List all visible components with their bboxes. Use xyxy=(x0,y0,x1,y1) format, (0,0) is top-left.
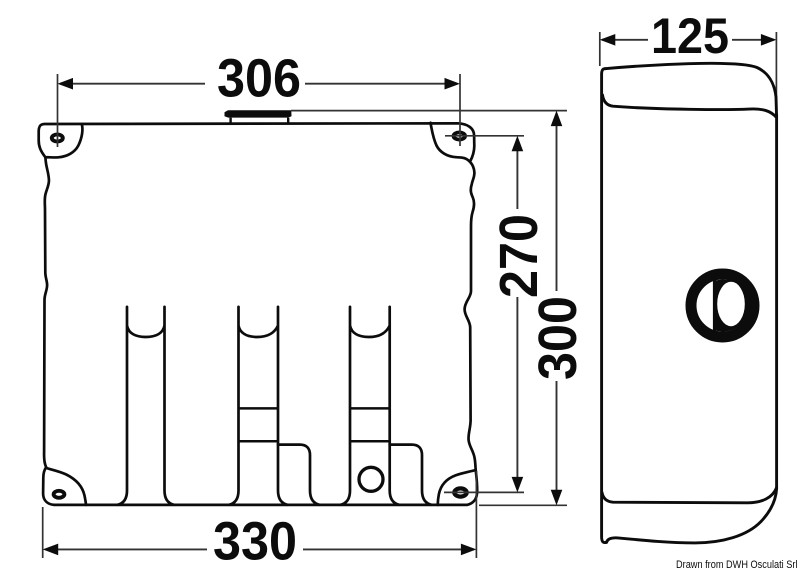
svg-text:Drawn from DWH Osculati Srl: Drawn from DWH Osculati Srl xyxy=(676,559,798,570)
svg-text:125: 125 xyxy=(651,8,729,64)
svg-text:306: 306 xyxy=(217,49,301,109)
svg-text:300: 300 xyxy=(528,296,588,380)
svg-text:270: 270 xyxy=(489,214,549,298)
svg-text:330: 330 xyxy=(213,512,297,570)
